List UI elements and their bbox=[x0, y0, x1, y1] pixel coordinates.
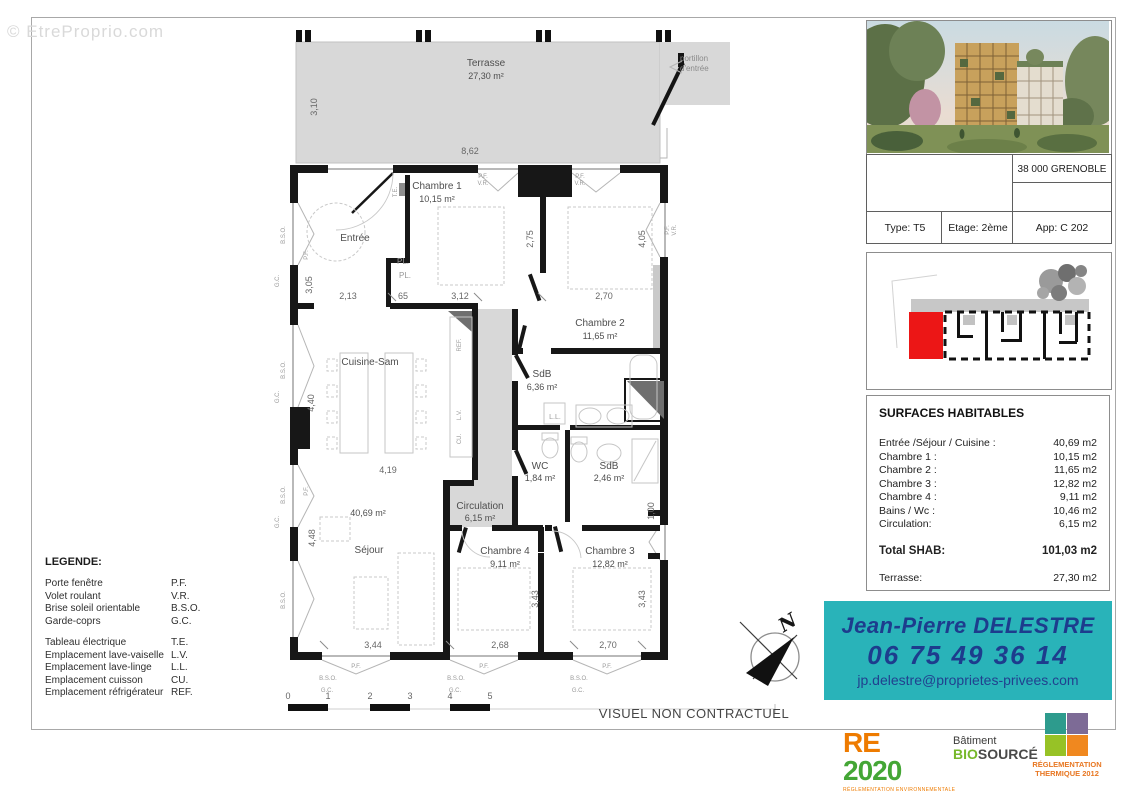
svg-text:9,11 m²: 9,11 m² bbox=[490, 559, 520, 569]
info-cell-city: 38 000 GRENOBLE bbox=[1012, 154, 1112, 185]
surface-terrasse-row: Terrasse:27,30 m2 bbox=[879, 572, 1097, 586]
svg-text:6,15 m²: 6,15 m² bbox=[465, 513, 496, 523]
agent-email: jp.delestre@proprietes-privees.com bbox=[857, 672, 1078, 688]
terrace: Terrasse 27,30 m² 3,10 8,62 portillon d'… bbox=[296, 30, 730, 163]
svg-text:3,43: 3,43 bbox=[637, 590, 647, 608]
kitchen-door-leaf bbox=[448, 311, 472, 332]
svg-text:L.V.: L.V. bbox=[457, 410, 463, 420]
railing-posts bbox=[296, 30, 671, 42]
svg-text:1: 1 bbox=[325, 691, 330, 701]
svg-text:1,00: 1,00 bbox=[646, 502, 656, 520]
svg-text:P.F.: P.F. bbox=[665, 225, 671, 235]
surface-row: Chambre 1 :10,15 m2 bbox=[879, 451, 1097, 465]
svg-text:2,68: 2,68 bbox=[491, 640, 509, 650]
legend-item: Brise soleil orientableB.S.O. bbox=[45, 603, 223, 616]
svg-text:0: 0 bbox=[285, 691, 290, 701]
svg-text:8,62: 8,62 bbox=[461, 146, 479, 156]
svg-text:P.F.: P.F. bbox=[575, 174, 585, 180]
svg-text:11,65 m²: 11,65 m² bbox=[583, 331, 618, 341]
svg-text:2,13: 2,13 bbox=[339, 291, 357, 301]
rt2012-square-orange bbox=[1067, 735, 1088, 756]
room-wc: WC bbox=[532, 461, 549, 472]
surface-row: Entrée /Séjour / Cuisine :40,69 m2 bbox=[879, 437, 1097, 451]
svg-text:d'entrée: d'entrée bbox=[680, 64, 709, 73]
surface-row: Chambre 2 :11,65 m2 bbox=[879, 464, 1097, 478]
building-photo bbox=[866, 20, 1112, 156]
surfaces-table: SURFACES HABITABLES Entrée /Séjour / Cui… bbox=[866, 395, 1110, 591]
key-plan-trees bbox=[1037, 264, 1087, 301]
svg-text:B.S.O.: B.S.O. bbox=[281, 486, 287, 504]
svg-text:B.S.O.: B.S.O. bbox=[281, 591, 287, 609]
circulation-area bbox=[443, 309, 517, 527]
agent-name: Jean-Pierre DELESTRE bbox=[841, 613, 1094, 639]
re2020-logo: RE 2020 RÉGLEMENTATION ENVIRONNEMENTALE bbox=[843, 729, 943, 793]
key-plan bbox=[866, 252, 1112, 390]
svg-text:CU.: CU. bbox=[457, 434, 463, 445]
info-cell-type: Type: T5 bbox=[866, 211, 944, 244]
sejour-area: 40,69 m² bbox=[350, 508, 386, 518]
rt2012-square-purple bbox=[1067, 713, 1088, 734]
room-entree: Entrée bbox=[340, 233, 370, 244]
legend-item: Emplacement lave-vaiselleL.V. bbox=[45, 650, 223, 663]
room-sejour: Séjour bbox=[355, 545, 385, 556]
svg-text:3,10: 3,10 bbox=[309, 98, 319, 116]
batiment-biosource-logo: Bâtiment BIOSOURCÉ bbox=[953, 736, 1038, 761]
rt2012-square-lime bbox=[1045, 735, 1066, 756]
svg-text:G.C.: G.C. bbox=[275, 275, 281, 288]
svg-text:P.F.: P.F. bbox=[304, 486, 310, 496]
info-cell-app: App: C 202 bbox=[1012, 211, 1112, 244]
info-cell-empty bbox=[1012, 182, 1112, 214]
svg-text:12,82 m²: 12,82 m² bbox=[592, 559, 628, 569]
legend-item: Volet roulantV.R. bbox=[45, 591, 223, 604]
svg-text:3: 3 bbox=[407, 691, 412, 701]
svg-text:2: 2 bbox=[367, 691, 372, 701]
room-sdb1: SdB bbox=[533, 369, 552, 380]
surface-total-row: Total SHAB:101,03 m2 bbox=[879, 545, 1097, 559]
svg-text:4,40: 4,40 bbox=[306, 394, 316, 412]
svg-text:1,84 m²: 1,84 m² bbox=[525, 473, 556, 483]
surface-row: Bains / Wc :10,46 m2 bbox=[879, 505, 1097, 519]
rt2012-square-green bbox=[1045, 713, 1066, 734]
legend-item: Porte fenêtreP.F. bbox=[45, 578, 223, 591]
room-chambre4: Chambre 4 bbox=[480, 546, 530, 557]
room-chambre1: Chambre 1 bbox=[412, 181, 462, 192]
svg-text:2,46 m²: 2,46 m² bbox=[594, 473, 625, 483]
room-chambre3: Chambre 3 bbox=[585, 546, 635, 557]
room-cuisine: Cuisine-Sam bbox=[341, 357, 398, 368]
svg-text:REF.: REF. bbox=[457, 338, 463, 351]
terrace-area: 27,30 m² bbox=[468, 71, 504, 81]
surfaces-title: SURFACES HABITABLES bbox=[879, 406, 1097, 420]
svg-text:3,44: 3,44 bbox=[364, 640, 382, 650]
surface-row: Chambre 4 :9,11 m2 bbox=[879, 491, 1097, 505]
svg-text:B.S.O.: B.S.O. bbox=[281, 226, 287, 244]
agent-phone: 06 75 49 36 14 bbox=[867, 640, 1069, 671]
svg-text:4,48: 4,48 bbox=[307, 529, 317, 547]
legend-title: LEGENDE: bbox=[45, 556, 223, 568]
svg-text:3,12: 3,12 bbox=[451, 291, 469, 301]
svg-text:B.S.O.: B.S.O. bbox=[570, 676, 588, 682]
svg-text:5: 5 bbox=[487, 691, 492, 701]
rt2012-logo bbox=[1045, 713, 1089, 757]
svg-text:65: 65 bbox=[398, 291, 408, 301]
svg-text:4,05: 4,05 bbox=[637, 230, 647, 248]
key-plan-drawing bbox=[867, 253, 1109, 387]
building-photo-render bbox=[867, 21, 1109, 153]
svg-text:P.F.: P.F. bbox=[479, 664, 489, 670]
surface-row: Circulation:6,15 m2 bbox=[879, 518, 1097, 532]
contact-card: Jean-Pierre DELESTRE 06 75 49 36 14 jp.d… bbox=[824, 601, 1112, 700]
svg-text:V.R.: V.R. bbox=[574, 181, 585, 187]
svg-text:B.S.O.: B.S.O. bbox=[281, 361, 287, 379]
room-sdb2: SdB bbox=[600, 461, 619, 472]
disclaimer: VISUEL NON CONTRACTUEL bbox=[599, 706, 789, 721]
legend-item: Garde-coprsG.C. bbox=[45, 616, 223, 629]
surface-row: Chambre 3 :12,82 m2 bbox=[879, 478, 1097, 492]
info-cell-etage: Etage: 2ème bbox=[941, 211, 1015, 244]
svg-text:G.C.: G.C. bbox=[572, 688, 585, 694]
svg-text:P.F.: P.F. bbox=[351, 664, 361, 670]
room-chambre2: Chambre 2 bbox=[575, 318, 625, 329]
info-cell-blank bbox=[866, 154, 1015, 214]
svg-text:V.R.: V.R. bbox=[672, 224, 678, 235]
svg-text:L.L.: L.L. bbox=[549, 414, 561, 421]
svg-text:10,15 m²: 10,15 m² bbox=[419, 194, 455, 204]
svg-text:T.E.: T.E. bbox=[393, 187, 399, 198]
room-circulation: Circulation bbox=[456, 501, 503, 512]
svg-text:6,36 m²: 6,36 m² bbox=[527, 382, 558, 392]
portillon-label: portillon bbox=[680, 54, 708, 63]
svg-text:3,43: 3,43 bbox=[530, 590, 540, 608]
svg-text:P.F.: P.F. bbox=[304, 250, 310, 260]
svg-text:PL.: PL. bbox=[399, 271, 411, 280]
terrace-label: Terrasse bbox=[467, 58, 506, 69]
legend-item: Emplacement cuissonCU. bbox=[45, 675, 223, 688]
compass-icon: N bbox=[740, 609, 800, 686]
watermark: © EtreProprio.com bbox=[7, 22, 164, 42]
svg-text:2,70: 2,70 bbox=[599, 640, 617, 650]
svg-text:2,70: 2,70 bbox=[595, 291, 613, 301]
svg-text:4: 4 bbox=[447, 691, 452, 701]
key-plan-highlight bbox=[909, 312, 943, 359]
svg-text:2,75: 2,75 bbox=[525, 230, 535, 248]
rt2012-caption: RÉGLEMENTATION THERMIQUE 2012 bbox=[1018, 760, 1116, 778]
floor-plan: Terrasse 27,30 m² 3,10 8,62 portillon d'… bbox=[270, 25, 800, 730]
legend-item: Emplacement réfrigérateurREF. bbox=[45, 687, 223, 700]
svg-text:P.F.: P.F. bbox=[478, 174, 488, 180]
legend: LEGENDE: Porte fenêtreP.F. Volet roulant… bbox=[45, 556, 223, 700]
svg-text:4,19: 4,19 bbox=[379, 465, 397, 475]
svg-text:PL.: PL. bbox=[397, 257, 409, 266]
svg-text:3,05: 3,05 bbox=[304, 276, 314, 294]
legend-item: Tableau électriqueT.E. bbox=[45, 637, 223, 650]
bath-door-leaf bbox=[627, 381, 664, 419]
svg-text:B.S.O.: B.S.O. bbox=[319, 676, 337, 682]
svg-text:G.C.: G.C. bbox=[275, 391, 281, 404]
svg-text:B.S.O.: B.S.O. bbox=[447, 676, 465, 682]
svg-text:P.F.: P.F. bbox=[602, 664, 612, 670]
svg-text:G.C.: G.C. bbox=[275, 516, 281, 529]
svg-text:V.R.: V.R. bbox=[477, 181, 488, 187]
re2020-caption: RÉGLEMENTATION ENVIRONNEMENTALE bbox=[843, 787, 943, 793]
legend-item: Emplacement lave-lingeL.L. bbox=[45, 662, 223, 675]
